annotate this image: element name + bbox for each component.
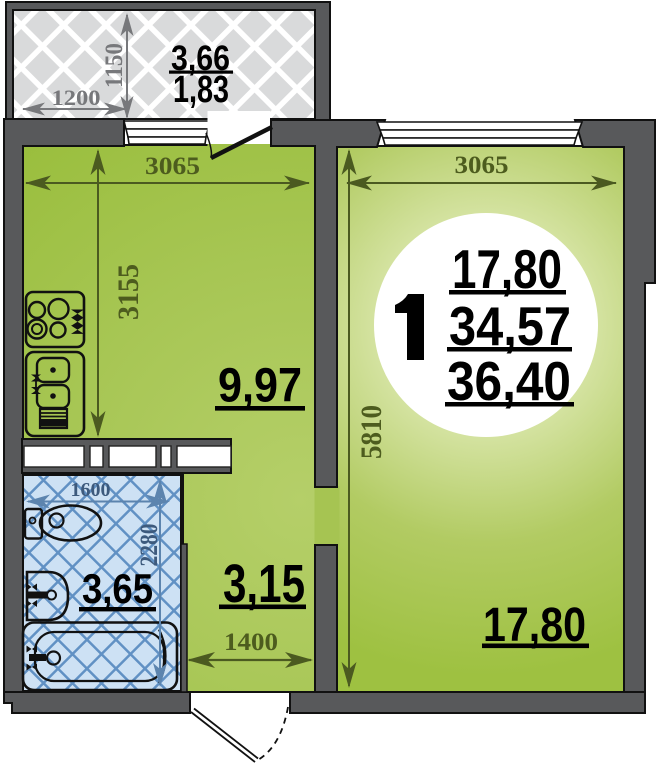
svg-text:5810: 5810 bbox=[355, 405, 388, 459]
svg-text:3,65: 3,65 bbox=[82, 565, 153, 612]
svg-text:1400: 1400 bbox=[224, 629, 278, 656]
svg-text:3065: 3065 bbox=[455, 152, 509, 179]
svg-text:2280: 2280 bbox=[136, 524, 163, 567]
svg-text:1,83: 1,83 bbox=[173, 69, 229, 111]
svg-text:3155: 3155 bbox=[112, 264, 145, 320]
svg-text:1600: 1600 bbox=[71, 479, 111, 501]
svg-text:1150: 1150 bbox=[101, 43, 128, 88]
svg-text:1200: 1200 bbox=[52, 85, 101, 110]
svg-text:3065: 3065 bbox=[145, 153, 200, 180]
svg-text:9,97: 9,97 bbox=[218, 360, 302, 413]
